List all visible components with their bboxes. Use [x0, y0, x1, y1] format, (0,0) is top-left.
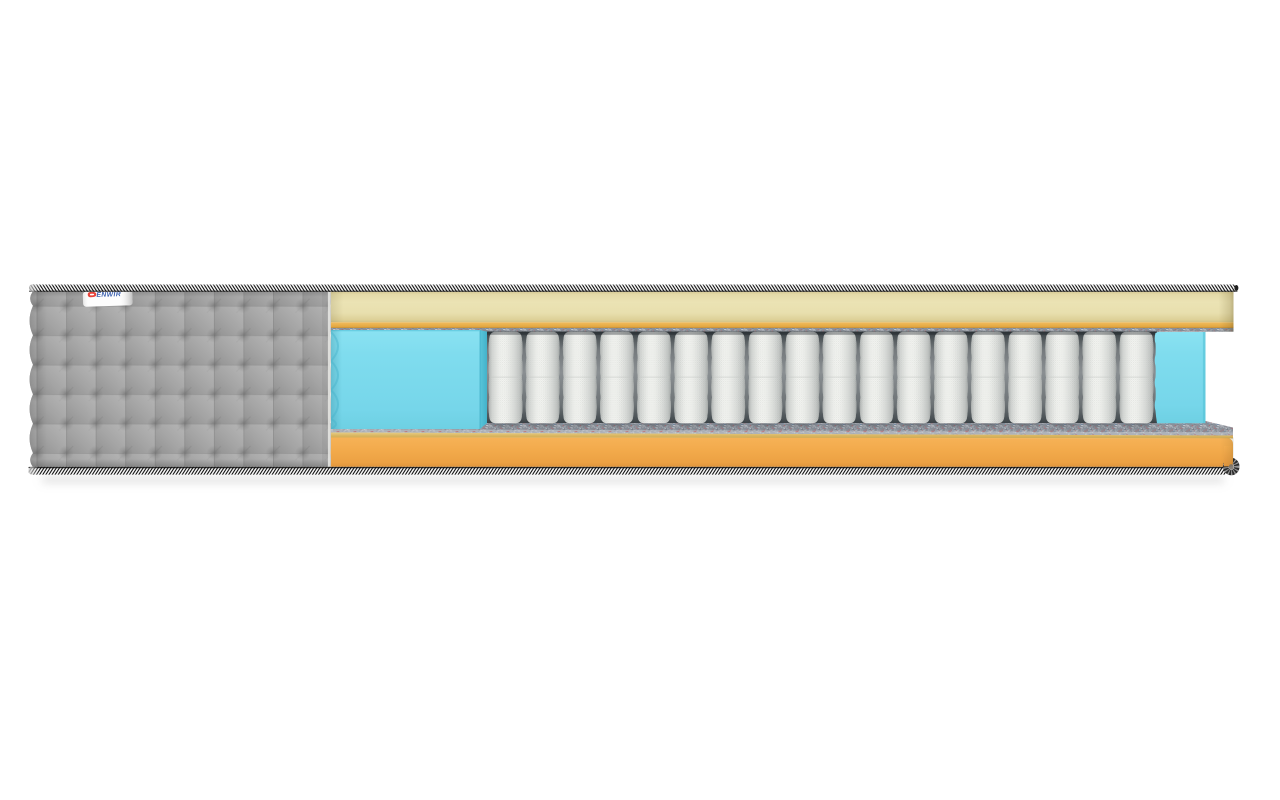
- svg-text:ENWIR: ENWIR: [96, 291, 121, 299]
